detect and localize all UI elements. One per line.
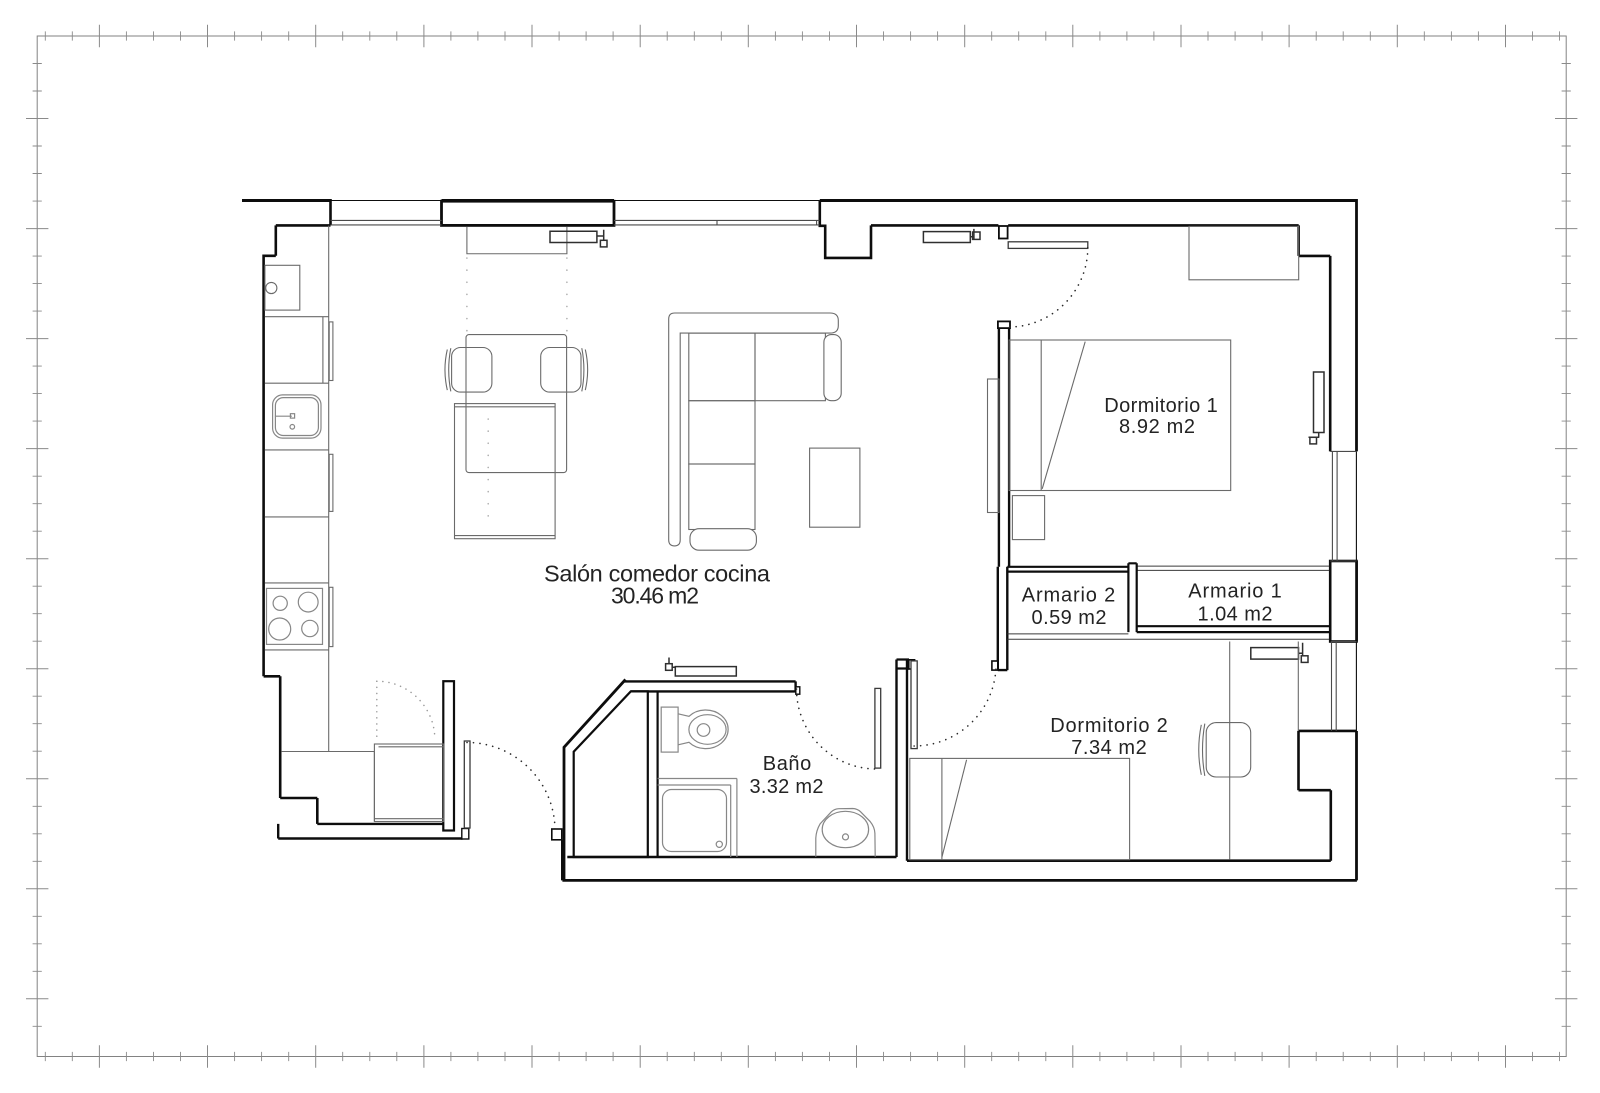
svg-text:Armario 1: Armario 1 bbox=[1188, 581, 1282, 603]
svg-text:Dormitorio 1: Dormitorio 1 bbox=[1104, 395, 1218, 417]
svg-text:0.59 m2: 0.59 m2 bbox=[1032, 607, 1107, 629]
svg-text:7.34 m2: 7.34 m2 bbox=[1071, 737, 1147, 759]
svg-text:Armario 2: Armario 2 bbox=[1022, 585, 1116, 607]
svg-text:3.32 m2: 3.32 m2 bbox=[750, 776, 824, 798]
svg-text:1.04 m2: 1.04 m2 bbox=[1198, 604, 1273, 626]
svg-text:30.46 m2: 30.46 m2 bbox=[611, 583, 699, 609]
svg-text:Dormitorio 2: Dormitorio 2 bbox=[1050, 715, 1168, 737]
svg-text:Baño: Baño bbox=[763, 753, 812, 775]
svg-text:8.92 m2: 8.92 m2 bbox=[1119, 416, 1195, 438]
